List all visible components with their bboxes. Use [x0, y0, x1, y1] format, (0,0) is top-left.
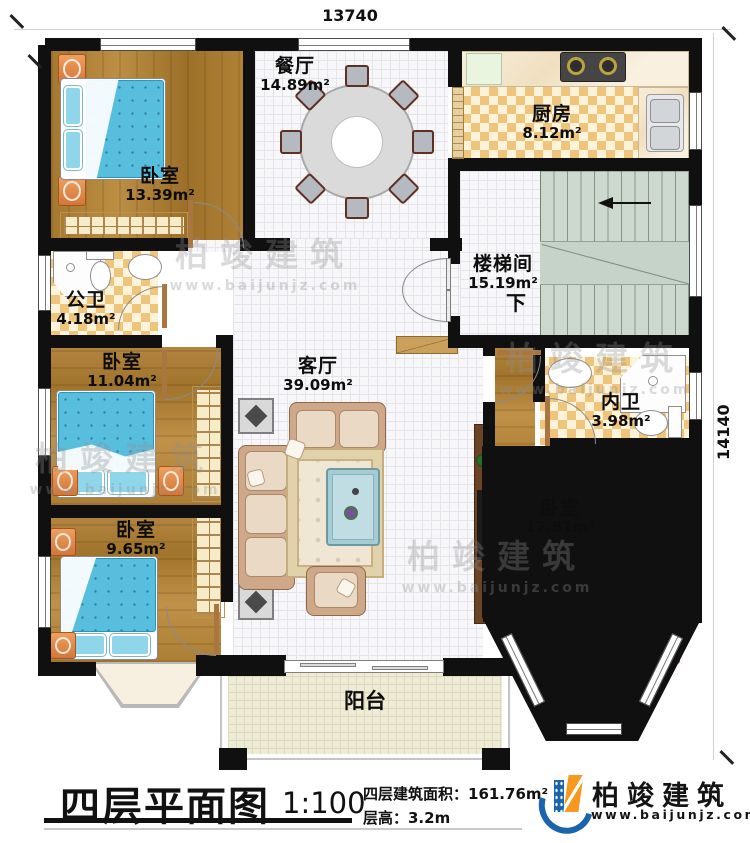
- room-name: 楼梯间: [443, 254, 563, 275]
- room-label-kitchen: 厨房 8.12m²: [492, 104, 612, 142]
- room-label-bedroom-tl: 卧室 13.39m²: [100, 166, 220, 204]
- window-right-kitchen: [689, 92, 702, 150]
- room-label-bedroom-bl: 卧室 9.65m²: [76, 520, 196, 558]
- dimension-tick-icon: [10, 14, 24, 28]
- room-name: 厨房: [492, 104, 612, 125]
- room-area: 39.09m²: [258, 377, 378, 394]
- toilet: [90, 261, 111, 291]
- floor-area-line: 四层建筑面积：161.76m²: [363, 782, 548, 806]
- wall-stair-bottom: [448, 335, 689, 348]
- room-label-bedroom-br: 卧室 17.81m²: [500, 498, 620, 536]
- dimension-tick-icon: [720, 750, 734, 764]
- pillow: [110, 634, 150, 656]
- room-name: 卧室: [100, 166, 220, 187]
- wall-kitchen-left: [448, 51, 462, 87]
- table-flowers-icon: [344, 506, 358, 520]
- dimension-height-label: 14140: [714, 340, 733, 460]
- dimension-width-label: 13740: [270, 6, 430, 25]
- shower-drain-icon: [66, 263, 75, 272]
- bedroom-bottom-right-wall-outline: [482, 446, 702, 741]
- plan-info: 四层建筑面积：161.76m² 层高：3.2m: [363, 782, 548, 830]
- page-title: 四层平面图: [60, 774, 270, 832]
- sofa-cushion: [339, 410, 379, 448]
- kitchen-sink-basin: [650, 126, 680, 150]
- balcony-sliding-door-panel: [300, 663, 356, 667]
- room-area: 4.18m²: [26, 311, 146, 328]
- room-area: 8.12m²: [492, 125, 612, 142]
- floor-height-line: 层高：3.2m: [363, 806, 548, 830]
- nightstand: [50, 632, 76, 659]
- stair-treads-upper: [540, 171, 689, 241]
- dining-table-center: [331, 116, 383, 168]
- floorplan-page: { "plan": { "dim_width": "13740", "dim_h…: [0, 0, 750, 837]
- room-label-balcony: 阳台: [305, 690, 425, 714]
- nightstand: [158, 466, 184, 496]
- room-area: 14.89m²: [235, 77, 355, 94]
- title-block: 四层平面图 1:100 四层建筑面积：161.76m² 层高：3.2m 柏竣建筑…: [0, 770, 750, 837]
- stair-treads-lower: [540, 285, 689, 337]
- room-label-stairwell: 楼梯间 15.19m²: [443, 254, 563, 292]
- dimension-line-top: [14, 29, 730, 30]
- room-name: 内卫: [566, 392, 676, 413]
- wall-living-bottom-right: [443, 658, 521, 676]
- bay-window-bottom-left-floor: [94, 664, 206, 704]
- wall-bedroom-ml-right: [221, 347, 233, 518]
- room-area: 11.04m²: [62, 373, 182, 390]
- scale-label: 1:100: [282, 786, 366, 820]
- shower-drain-icon: [648, 376, 658, 386]
- wall-below-bedroom-tl-b: [240, 238, 290, 251]
- room-label-public-bathroom: 公卫 4.18m²: [26, 290, 146, 328]
- room-label-bedroom-ml: 卧室 11.04m²: [62, 352, 182, 390]
- wall-bedroom-bl-right: [221, 518, 233, 602]
- window-top-dining: [298, 38, 410, 51]
- dining-chair: [345, 197, 369, 219]
- wall-bedroom-br-left-b: [483, 402, 495, 622]
- window-top-bedroom: [100, 38, 196, 51]
- stairs-direction-label: 下: [496, 292, 536, 314]
- wall-bedroom-br-left-a: [483, 348, 495, 356]
- toilet-tank: [86, 251, 114, 260]
- table-flowers-icon: [352, 488, 359, 495]
- wall-bedrooms-left-divider: [38, 505, 233, 518]
- sofa-cushion: [245, 494, 287, 534]
- wall-kitchen-bottom: [448, 158, 702, 171]
- room-label-ensuite: 内卫 3.98m²: [566, 392, 676, 430]
- room-area: 15.19m²: [443, 275, 563, 292]
- brand-logo-icon: [538, 770, 592, 830]
- balcony-sliding-door-panel: [372, 666, 428, 670]
- room-name: 卧室: [62, 352, 182, 373]
- room-area: 17.81m²: [500, 519, 620, 536]
- window-left-bedroom-ml: [38, 388, 51, 456]
- room-name: 公卫: [26, 290, 146, 311]
- bedroom-tl-door: [188, 200, 193, 248]
- room-name: 餐厅: [235, 56, 355, 77]
- window-right-stairwell: [689, 205, 702, 297]
- nightstand: [52, 466, 78, 496]
- wall-living-bottom-left: [196, 655, 286, 676]
- window-bay-br-bottom: [566, 723, 622, 735]
- wall-below-bedroom-tl-a: [38, 238, 188, 251]
- pillow: [64, 130, 82, 170]
- bedroom-br-door: [497, 350, 541, 355]
- window-left-bedroom-bl: [38, 556, 51, 628]
- dining-chair: [412, 130, 434, 154]
- balcony-pillar-right: [482, 748, 510, 770]
- floor-plan: 13740 14140: [0, 0, 750, 770]
- wall-stair-left-upper: [448, 160, 460, 264]
- wall-bath-bottom-a: [38, 335, 162, 348]
- room-label-dining: 餐厅 14.89m²: [235, 56, 355, 94]
- room-name: 卧室: [76, 520, 196, 541]
- pillow: [108, 470, 148, 494]
- room-area: 13.39m²: [100, 187, 220, 204]
- pillow: [64, 86, 82, 126]
- wall-bedroom-bl-bottom: [38, 662, 96, 676]
- nightstand: [58, 176, 86, 206]
- bathroom-sink: [128, 254, 162, 280]
- title-underline: [44, 818, 352, 823]
- bathroom-sink: [548, 358, 592, 388]
- stairs-down-arrow-tail: [613, 202, 651, 204]
- kitchen-sliding-door: [452, 87, 464, 159]
- room-area: 3.98m²: [566, 413, 676, 430]
- brand-website: www.baijunjz.com: [591, 807, 750, 822]
- wardrobe: [60, 212, 188, 239]
- logo-building-blue-icon: [554, 780, 564, 812]
- balcony-pillar-left: [219, 748, 247, 770]
- fridge: [466, 53, 502, 85]
- room-label-living: 客厅 39.09m²: [258, 356, 378, 394]
- room-area: 9.65m²: [76, 541, 196, 558]
- window-right-ensuite: [689, 372, 702, 420]
- nightstand: [50, 528, 76, 556]
- sofa-cushion: [245, 537, 287, 577]
- stove-burner-icon: [599, 57, 617, 75]
- room-name: 客厅: [258, 356, 378, 377]
- dining-chair: [280, 130, 302, 154]
- stairs-down-arrow-icon: [598, 197, 613, 209]
- room-name: 卧室: [500, 498, 620, 519]
- kitchen-sink-basin: [650, 99, 680, 123]
- stove-burner-icon: [567, 57, 585, 75]
